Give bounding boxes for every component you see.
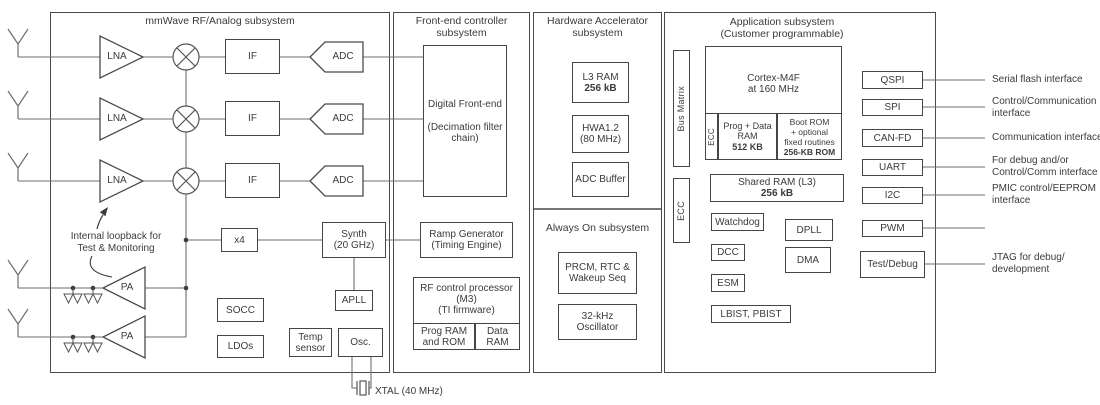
shared-ram-block: Shared RAM (L3) 256 kB [710,174,844,202]
desc-line: Serial flash interface [992,74,1100,86]
desc-line: development [992,264,1100,276]
ecc-label: ECC [676,201,687,221]
adc-buffer-block: ADC Buffer [572,162,629,197]
hwa12-label-line1: HWA1.2 [582,123,619,134]
dpll-block: DPLL [785,219,833,241]
l3ram-size-label: 256 kB [584,83,616,94]
if-block: IF [225,39,280,74]
uart-label: UART [879,162,906,173]
pa-label: PA [111,332,143,342]
prcm-rtc-block: PRCM, RTC & Wakeup Seq [558,252,637,294]
if-label: IF [248,51,257,62]
ldos-label: LDOs [228,341,254,352]
desc-line: interface [992,195,1100,207]
ldos-block: LDOs [217,335,264,358]
l3ram-label-line1: L3 RAM [582,72,618,83]
frontend-title-line2: subsystem [393,27,530,39]
osc-block: Osc. [338,328,383,357]
bus-matrix-label: Bus Matrix [676,86,687,132]
bootrom-size-label: 256-KB ROM [784,147,835,157]
temp-label-line1: Temp [298,332,322,343]
tx-antenna-icon [8,260,28,288]
ecc-small-block: ECC [705,113,718,160]
progrom-label-line2: and ROM [423,337,466,348]
ramp-label-line2: (Timing Engine) [431,240,501,251]
can-fd-label: CAN-FD [874,133,912,144]
frontend-title-line1: Front-end controller [393,15,530,27]
connector-layer [0,0,1100,405]
cortex-label-line1: Cortex-M4F [747,73,800,84]
bootrom-label-line1: Boot ROM [790,117,830,127]
if-label: IF [248,175,257,186]
desc-line: Communication interface [992,132,1100,144]
alwayson-title: Always On subsystem [533,222,662,234]
spi-label: SPI [884,102,900,113]
if-label: IF [248,113,257,124]
rfproc-label-line1: RF control processor [420,283,513,294]
mmwave-title-text: mmWave RF/Analog subsystem [145,15,295,27]
rx-antenna-icons [8,29,28,337]
x4-label: x4 [234,235,245,246]
bootrom-label-line3: fixed routines [784,137,835,147]
frontend-title: Front-end controller subsystem [393,15,530,39]
i2c-label: I2C [885,190,901,201]
if-block: IF [225,163,280,198]
osc32-label-line1: 32-kHz [582,311,614,322]
prcm-label-line1: PRCM, RTC & [565,262,630,273]
i2c-desc: PMIC control/EEPROM interface [992,183,1100,207]
hwa12-label-line2: (80 MHz) [580,134,621,145]
osc-label: Osc. [350,337,371,348]
mixer-icons [173,44,199,194]
prog-ram-rom-block: Prog RAM and ROM [413,323,475,350]
adc-label: ADC [324,52,362,62]
dataram-label-line1: Data [487,326,508,337]
dpll-label: DPLL [796,225,821,236]
interface-lines [923,80,985,264]
lna-label: LNA [101,52,133,62]
can-fd-block: CAN-FD [862,129,923,147]
prcm-label-line2: Wakeup Seq [569,273,626,284]
soc-block-diagram: mmWave RF/Analog subsystem Front-end con… [0,0,1100,405]
progrom-label-line1: Prog RAM [421,326,467,337]
ecc-block: ECC [673,178,690,243]
tx-switch-icons [64,288,102,352]
esm-label: ESM [717,278,739,289]
mmwave-title: mmWave RF/Analog subsystem [50,15,390,27]
test-debug-block: Test/Debug [860,251,925,278]
l3-ram-block: L3 RAM 256 kB [572,62,629,103]
temp-label-line2: sensor [295,343,325,354]
desc-line: JTAG for debug/ [992,252,1100,264]
osc32-label-line2: Oscillator [577,322,619,333]
apll-label: APLL [342,295,366,306]
boot-rom-block: Boot ROM + optional fixed routines 256-K… [777,113,842,160]
tx-antenna-icon [8,309,28,337]
osc-32khz-block: 32-kHz Oscillator [558,304,637,340]
progdata-label-line2: RAM [738,131,758,142]
xtal-crystal-icon [357,381,369,395]
qspi-desc: Serial flash interface [992,74,1100,86]
if-block: IF [225,101,280,136]
dma-label: DMA [797,255,819,266]
progdata-label-line1: Prog + Data [723,121,771,132]
pwm-block: PWM [862,220,923,237]
uart-block: UART [862,159,923,176]
progdata-size-label: 512 KB [732,142,763,153]
uart-desc: For debug and/or Control/Comm interface [992,155,1100,179]
dataram-label-line2: RAM [486,337,508,348]
lbist-pbist-block: LBIST, PBIST [711,305,791,323]
loopback-note-line2: Test & Monitoring [51,243,181,255]
socc-label: SOCC [226,305,255,316]
x4-multiplier-block: x4 [221,228,258,252]
ramp-label-line1: Ramp Generator [429,229,503,240]
xtal-label: XTAL (40 MHz) [375,387,450,397]
lna-label: LNA [101,114,133,124]
bus-matrix-block: Bus Matrix [673,50,690,167]
digital-frontend-block: Digital Front-end (Decimation filter cha… [423,45,507,197]
qspi-block: QSPI [862,71,923,89]
application-title-line1: Application subsystem [664,16,900,28]
desc-line: For debug and/or [992,155,1100,167]
dcc-label: DCC [717,247,739,258]
hwa12-block: HWA1.2 (80 MHz) [572,115,629,153]
pa-label: PA [111,283,143,293]
can-fd-desc: Communication interface [992,132,1100,144]
spi-desc: Control/Communication interface [992,96,1100,120]
test-debug-desc: JTAG for debug/ development [992,252,1100,276]
hwa-title-line2: subsystem [533,27,662,39]
desc-line: Control/Communication [992,96,1100,108]
temp-sensor-block: Temp sensor [289,328,332,357]
rfproc-label-line3: (TI firmware) [438,305,495,316]
desc-line: Control/Comm interface [992,167,1100,179]
socc-block: SOCC [217,298,264,322]
bootrom-label-line2: + optional [791,127,828,137]
lna-label: LNA [101,176,133,186]
synth-label-line2: (20 GHz) [334,240,375,251]
shared-ram-size-label: 256 kB [761,188,793,199]
desc-line: interface [992,108,1100,120]
shared-ram-label: Shared RAM (L3) [738,177,816,188]
loopback-note-line1: Internal loopback for [51,231,181,243]
adc-label: ADC [324,114,362,124]
dfe-label-line1: Digital Front-end [428,99,502,110]
synth-label-line1: Synth [341,229,367,240]
spi-block: SPI [862,99,923,116]
ramp-generator-block: Ramp Generator (Timing Engine) [420,222,513,258]
loopback-note: Internal loopback for Test & Monitoring [51,231,181,255]
watchdog-label: Watchdog [715,217,760,228]
lbist-pbist-label: LBIST, PBIST [720,309,781,320]
rfproc-label-line2: (M3) [456,294,477,305]
cortex-label-line2: at 160 MHz [748,84,799,95]
prog-data-ram-block: Prog + Data RAM 512 KB [718,113,777,160]
test-debug-label: Test/Debug [867,259,918,270]
dfe-label-line3: chain) [451,133,478,144]
dma-block: DMA [785,247,831,273]
application-title: Application subsystem (Customer programm… [664,16,900,40]
synth-block: Synth (20 GHz) [322,222,386,258]
dfe-label-line2: (Decimation filter [427,122,502,133]
i2c-block: I2C [862,187,923,204]
ecc-small-label: ECC [706,128,717,146]
apll-block: APLL [335,290,373,311]
qspi-label: QSPI [881,75,905,86]
adc-label: ADC [324,176,362,186]
adc-buffer-label: ADC Buffer [575,174,625,185]
esm-block: ESM [711,274,745,292]
dcc-block: DCC [711,244,745,261]
application-title-line2: (Customer programmable) [664,28,900,40]
watchdog-block: Watchdog [711,213,764,231]
hwa-title: Hardware Accelerator subsystem [533,15,662,39]
data-ram-block: Data RAM [475,323,520,350]
desc-line: PMIC control/EEPROM [992,183,1100,195]
pwm-label: PWM [880,223,904,234]
hwa-title-line1: Hardware Accelerator [533,15,662,27]
alwayson-title-text: Always On subsystem [546,222,649,234]
